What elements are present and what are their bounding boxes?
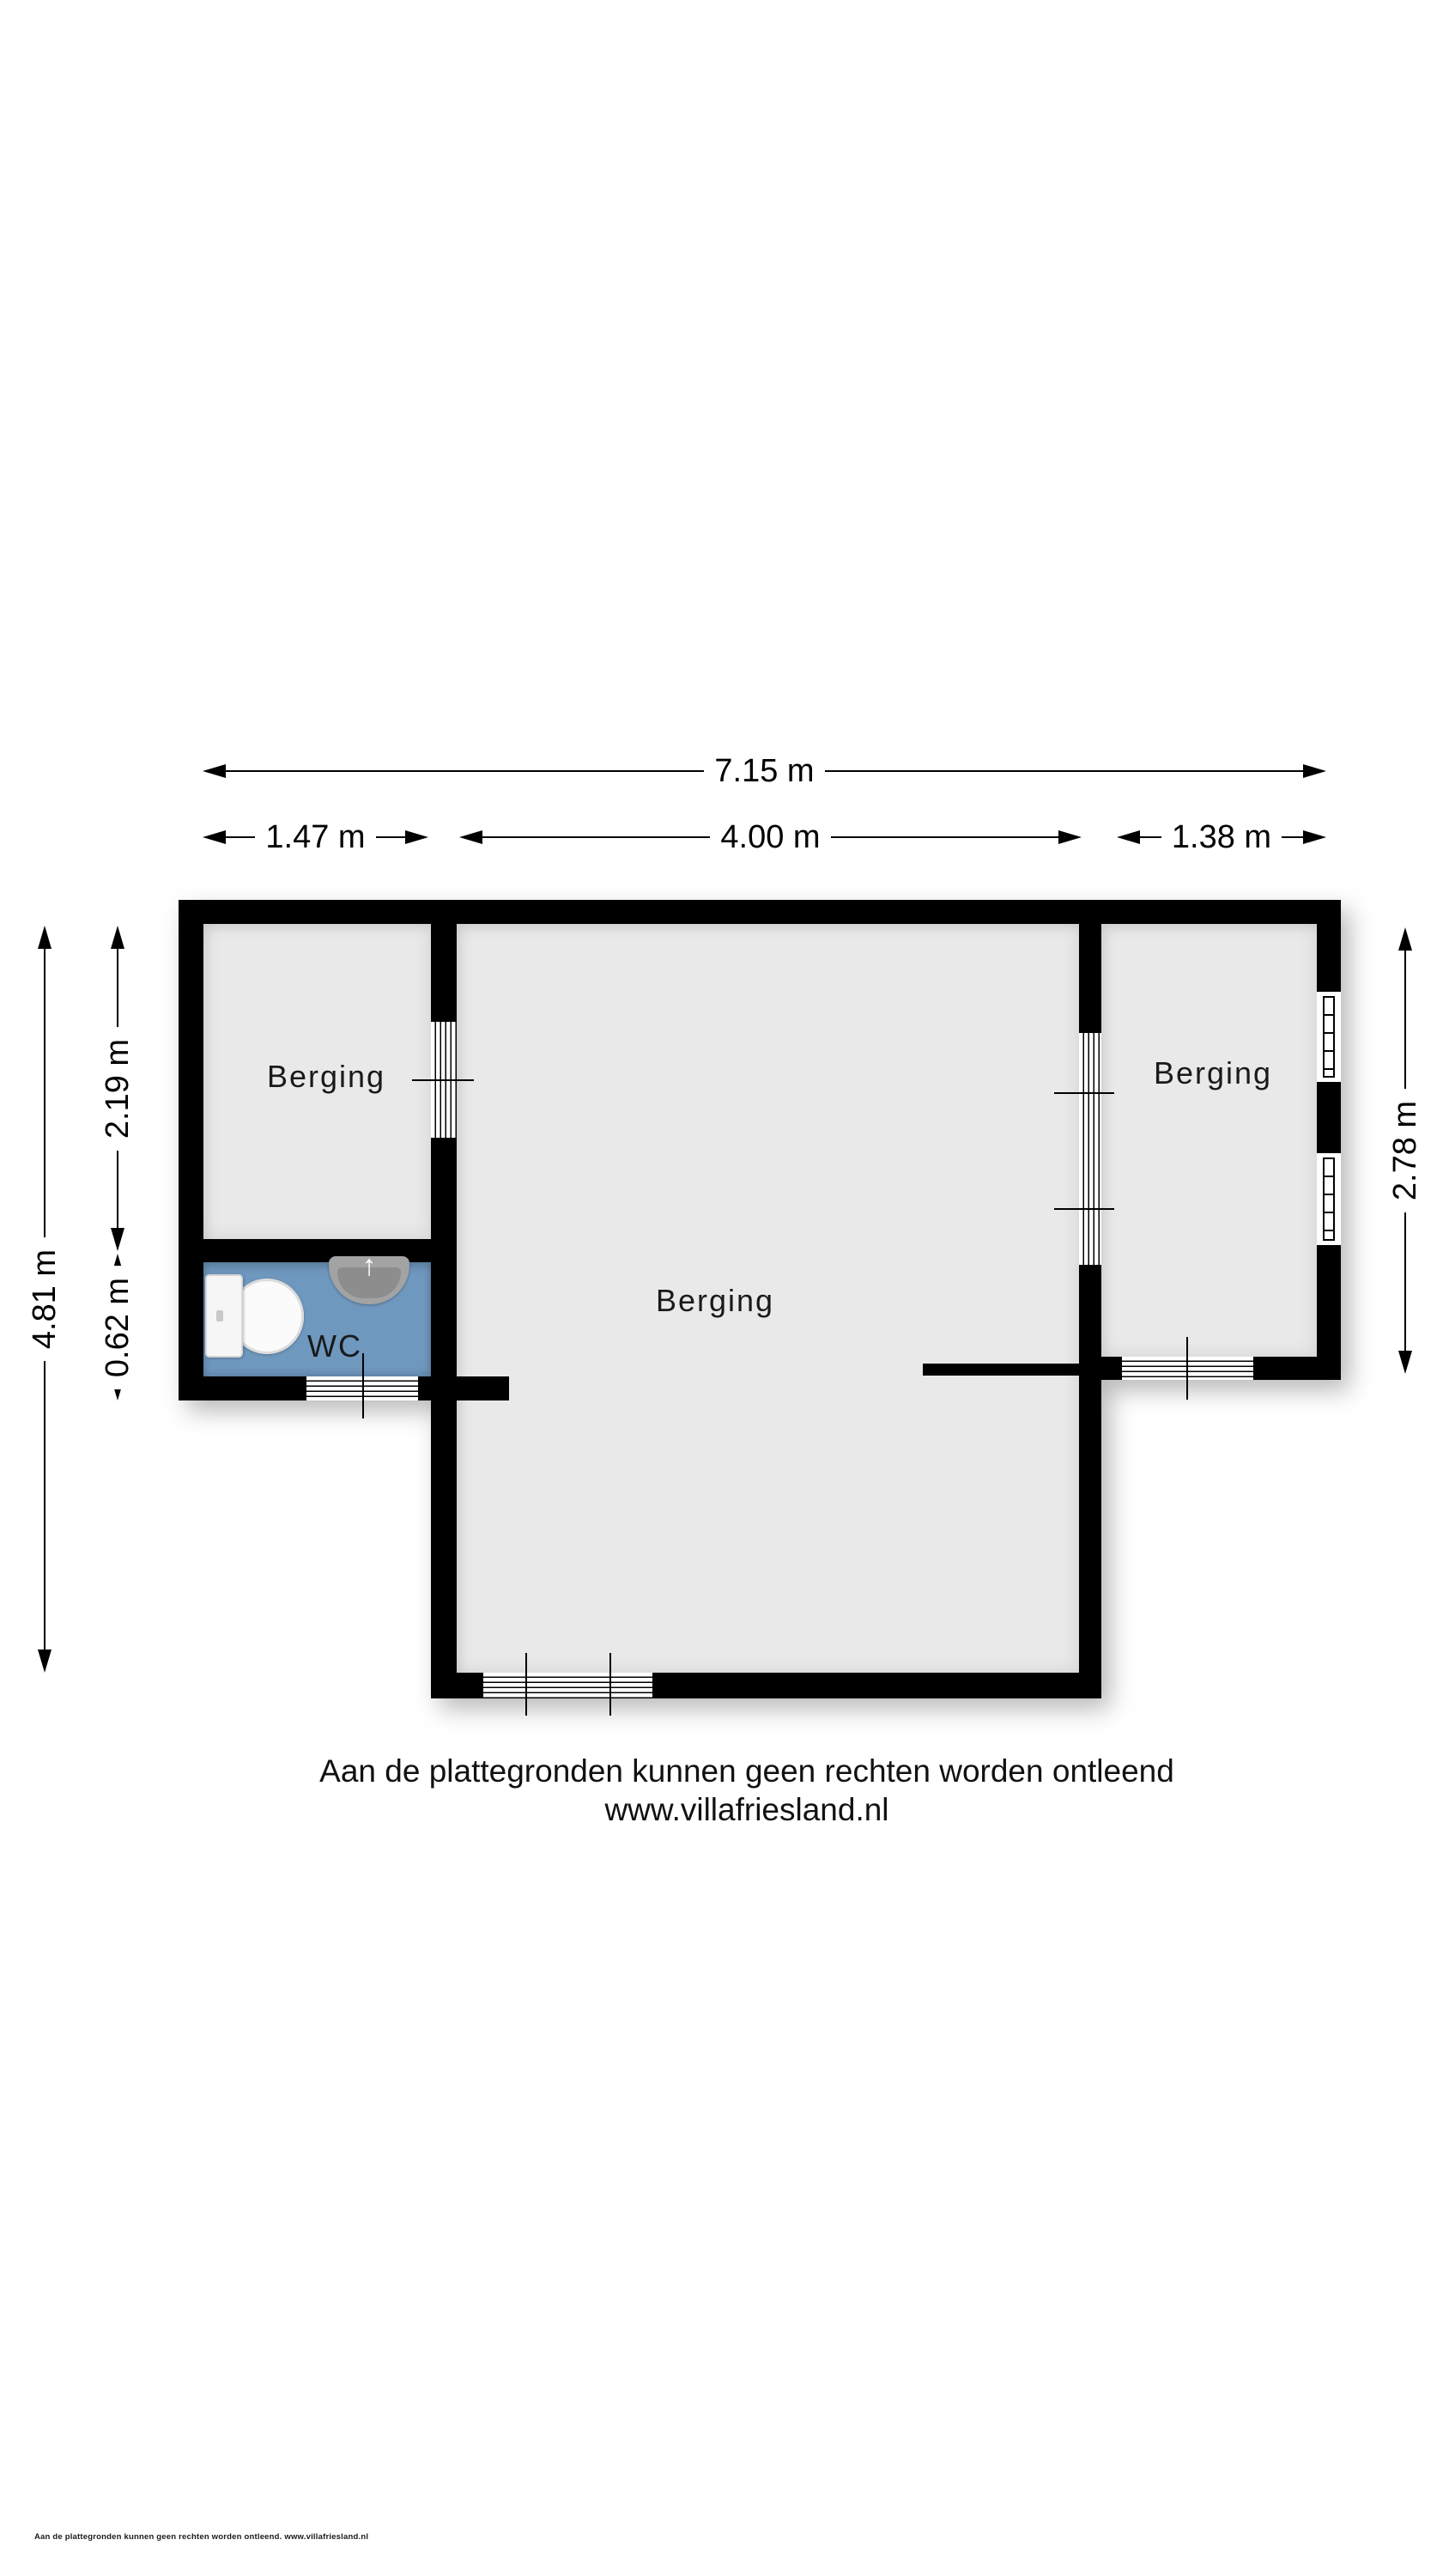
dimension-top-right: 1.38 m — [1117, 829, 1326, 845]
dimension-label: 7.15 m — [704, 753, 824, 789]
window-tick-bottom-1 — [525, 1653, 527, 1716]
arrowhead-left-icon — [1117, 830, 1140, 844]
door-tick-left — [412, 1079, 474, 1081]
wall-interior-right-above-door — [1079, 924, 1101, 1033]
wall-interior-right-below-door — [1079, 1265, 1101, 1698]
door-tick-rightroom — [1186, 1337, 1188, 1400]
sink-tap-icon: ↑ — [362, 1251, 377, 1280]
wall-interior-left-below-door — [431, 1138, 457, 1673]
door-berging-right — [1079, 1033, 1101, 1265]
dimension-top-left: 1.47 m — [203, 829, 428, 845]
toilet-flush-button — [216, 1310, 223, 1321]
wall-top — [179, 900, 1341, 924]
wall-interior-left-above-door — [431, 924, 457, 1022]
disclaimer-text: Aan de plattegronden kunnen geen rechten… — [26, 1752, 1449, 1790]
arrowhead-down-icon — [111, 1228, 124, 1251]
wall-wc-bottom-left — [179, 1376, 306, 1400]
window-right-upper — [1317, 992, 1341, 1082]
dimension-label: 0.62 m — [94, 1265, 141, 1388]
window-bottom-center — [483, 1673, 652, 1698]
window-tick-bottom-2 — [609, 1653, 611, 1716]
wall-stub-center — [923, 1364, 1079, 1376]
arrowhead-up-icon — [38, 926, 52, 949]
arrowhead-right-icon — [1303, 830, 1326, 844]
room-label-berging-center: Berging — [656, 1283, 774, 1319]
arrowhead-left-icon — [203, 764, 226, 778]
room-floor-berging-right — [1101, 924, 1317, 1357]
dimension-top-total: 7.15 m — [203, 763, 1326, 779]
arrowhead-right-icon — [1058, 830, 1082, 844]
wall-right-upper — [1317, 900, 1341, 992]
wall-bottom-left-segment — [431, 1673, 483, 1698]
arrowhead-right-icon — [1303, 764, 1326, 778]
website-text: www.villafriesland.nl — [26, 1790, 1449, 1829]
dimension-label: 1.47 m — [255, 819, 375, 855]
room-label-berging-right: Berging — [1154, 1055, 1272, 1091]
door-tick-right-1 — [1054, 1092, 1114, 1094]
arrowhead-right-icon — [405, 830, 428, 844]
arrowhead-left-icon — [459, 830, 482, 844]
floorplan-page: ↑ Berging Berging Berging WC 7.15 m 1.47… — [0, 0, 1449, 2576]
dimension-left-lower: 0.62 m — [110, 1254, 125, 1400]
dimension-label: 4.81 m — [21, 1237, 68, 1361]
arrowhead-down-icon — [38, 1649, 52, 1673]
arrowhead-left-icon — [203, 830, 226, 844]
wall-rightroom-bottom-right — [1253, 1357, 1317, 1380]
dimension-left-upper: 2.19 m — [110, 926, 125, 1251]
wall-left — [179, 900, 203, 1400]
dimension-right-side: 2.78 m — [1397, 927, 1413, 1374]
toilet-tank — [205, 1274, 243, 1358]
room-label-berging-left: Berging — [267, 1059, 385, 1095]
dimension-label: 2.78 m — [1382, 1089, 1428, 1212]
arrowhead-down-icon — [1398, 1351, 1412, 1374]
window-right-lower — [1317, 1153, 1341, 1245]
door-tick-right-2 — [1054, 1208, 1114, 1210]
dimension-label: 2.19 m — [94, 1026, 141, 1150]
dimension-left-total: 4.81 m — [37, 926, 52, 1673]
fine-print: Aan de plattegronden kunnen geen rechten… — [34, 2532, 368, 2542]
dimension-top-center: 4.00 m — [459, 829, 1082, 845]
wall-right-between-windows — [1317, 1082, 1341, 1153]
wall-bottom-right-segment — [652, 1673, 1101, 1698]
door-tick-wc — [362, 1353, 364, 1419]
dimension-label: 4.00 m — [710, 819, 830, 855]
wall-rightroom-bottom-left — [1101, 1357, 1122, 1380]
footer-disclaimer: Aan de plattegronden kunnen geen rechten… — [26, 1752, 1449, 1829]
dimension-label: 1.38 m — [1161, 819, 1282, 855]
wall-right-lower — [1317, 1245, 1341, 1380]
arrowhead-up-icon — [1398, 927, 1412, 951]
arrowhead-up-icon — [111, 926, 124, 949]
room-label-wc: WC — [307, 1328, 362, 1364]
